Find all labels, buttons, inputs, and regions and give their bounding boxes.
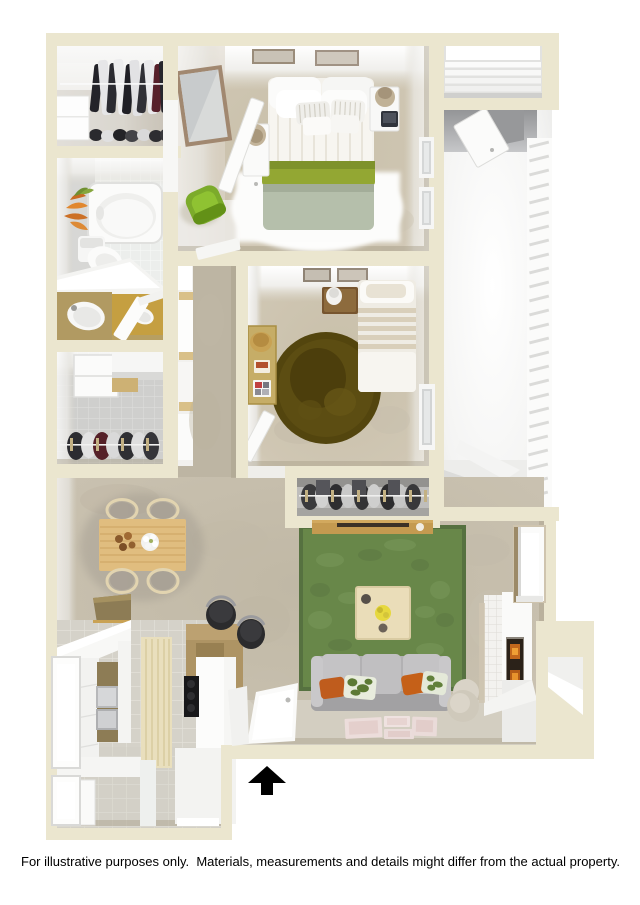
svg-text:For illustrative purposes only: For illustrative purposes only. Material…: [21, 854, 620, 869]
